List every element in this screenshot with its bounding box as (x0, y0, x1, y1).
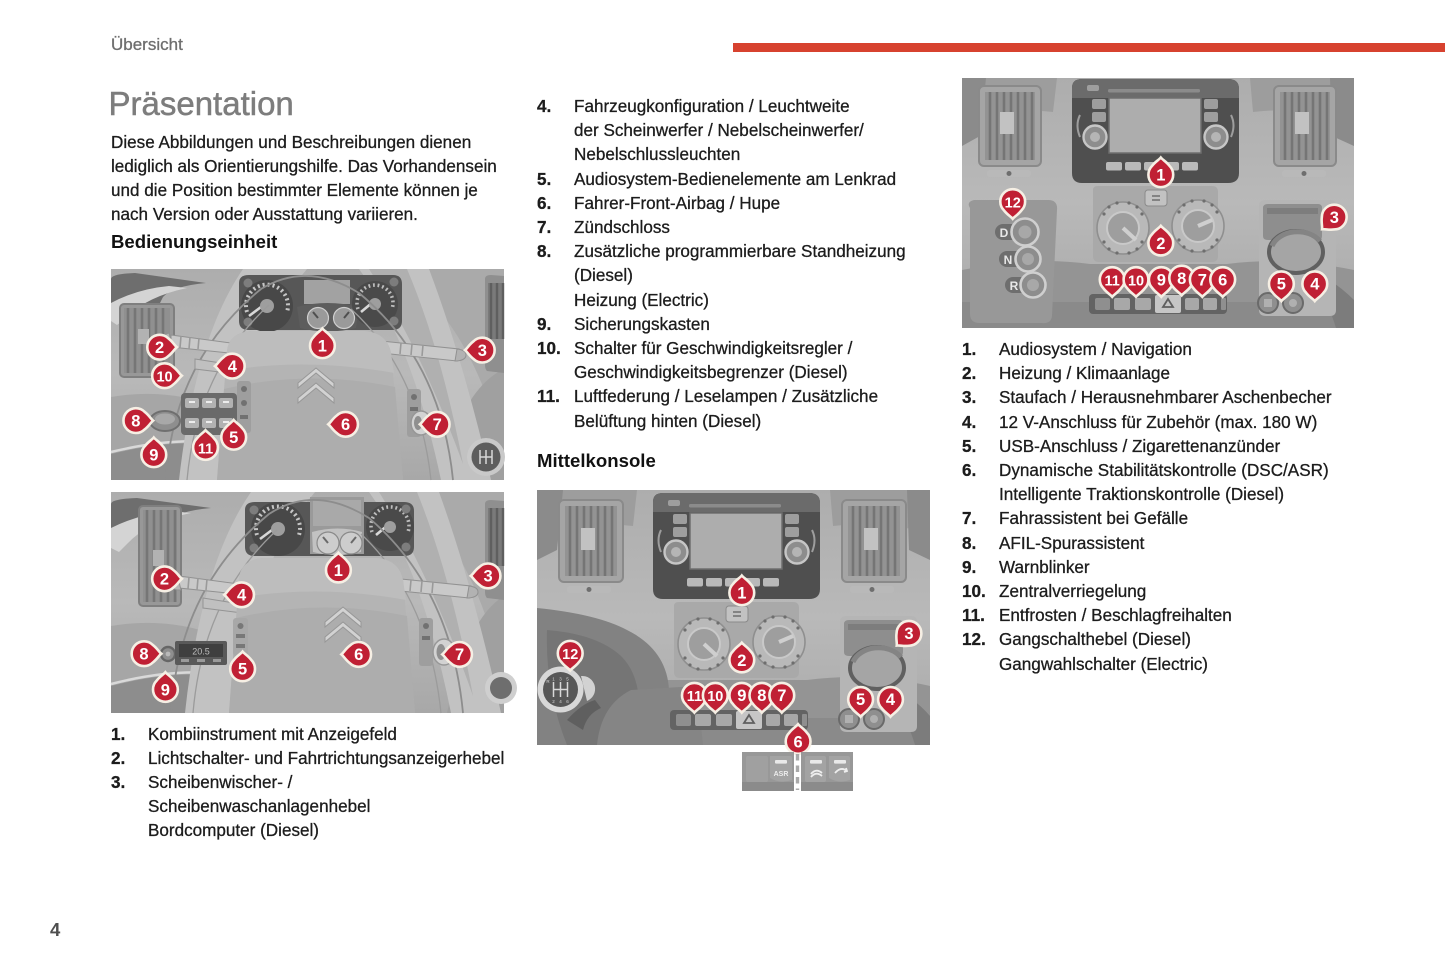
svg-text:6: 6 (341, 416, 350, 434)
svg-text:9: 9 (1157, 271, 1166, 289)
svg-text:6: 6 (1218, 271, 1227, 289)
svg-text:3: 3 (484, 568, 493, 586)
svg-text:1: 1 (1156, 167, 1165, 185)
svg-text:2: 2 (160, 571, 169, 589)
svg-text:20.5: 20.5 (192, 647, 210, 657)
svg-text:6: 6 (354, 646, 363, 664)
svg-text:D: D (1000, 226, 1009, 240)
svg-text:7: 7 (433, 416, 442, 434)
svg-text:6: 6 (794, 733, 803, 751)
svg-text:N: N (1004, 253, 1013, 267)
svg-text:4: 4 (1310, 276, 1320, 294)
svg-text:2: 2 (737, 652, 746, 670)
svg-text:9: 9 (737, 687, 746, 705)
svg-text:8: 8 (1177, 270, 1186, 288)
svg-text:8: 8 (139, 646, 148, 664)
svg-text:11: 11 (687, 689, 702, 705)
svg-text:10: 10 (1128, 273, 1144, 289)
svg-text:4: 4 (237, 587, 247, 605)
svg-text:5: 5 (229, 429, 238, 447)
svg-text:7: 7 (1198, 271, 1207, 289)
svg-text:12: 12 (1005, 195, 1021, 211)
svg-text:4: 4 (228, 358, 238, 376)
svg-text:2: 2 (1156, 235, 1165, 253)
svg-text:9: 9 (149, 447, 158, 465)
svg-text:5: 5 (856, 691, 865, 709)
svg-text:11: 11 (198, 441, 213, 457)
svg-text:3: 3 (904, 625, 913, 643)
svg-text:8: 8 (131, 412, 140, 430)
svg-text:10: 10 (156, 370, 172, 386)
svg-text:1: 1 (318, 338, 327, 356)
svg-text:ASR: ASR (774, 771, 789, 778)
svg-text:5: 5 (1277, 276, 1286, 294)
svg-text:2: 2 (155, 339, 164, 357)
svg-text:7: 7 (455, 646, 464, 664)
svg-text:10: 10 (707, 689, 723, 705)
svg-text:1: 1 (737, 585, 746, 603)
svg-text:R: R (1010, 279, 1019, 293)
svg-text:8: 8 (757, 687, 766, 705)
svg-text:12: 12 (562, 647, 578, 663)
svg-text:9: 9 (161, 681, 170, 699)
svg-text:11: 11 (1105, 273, 1120, 289)
svg-text:7: 7 (777, 687, 786, 705)
svg-text:4: 4 (886, 691, 896, 709)
svg-text:1: 1 (334, 562, 343, 580)
svg-text:3: 3 (478, 342, 487, 360)
svg-text:5: 5 (238, 661, 247, 679)
svg-text:3: 3 (1330, 209, 1339, 227)
